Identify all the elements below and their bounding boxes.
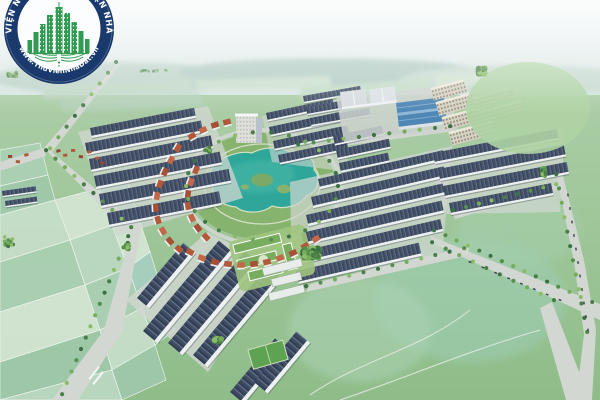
- villa: [152, 192, 160, 201]
- tree: [571, 258, 575, 262]
- tree: [568, 290, 572, 294]
- tree: [3, 235, 7, 239]
- tree: [334, 197, 338, 201]
- tree: [574, 273, 578, 277]
- tree: [534, 274, 538, 278]
- tree: [568, 244, 572, 248]
- tree: [565, 230, 569, 234]
- tree: [579, 302, 583, 306]
- tree: [443, 233, 447, 237]
- tree: [357, 135, 361, 139]
- village-house: [63, 153, 68, 156]
- tree: [457, 253, 461, 257]
- tree: [120, 217, 124, 221]
- tree: [74, 358, 78, 362]
- tree: [60, 392, 64, 396]
- tree: [112, 268, 116, 272]
- tree: [333, 277, 337, 281]
- tree: [219, 336, 224, 341]
- tree: [522, 269, 526, 273]
- tree: [251, 130, 255, 134]
- tree: [525, 285, 529, 289]
- tree: [590, 300, 594, 304]
- tree: [462, 246, 466, 250]
- tree: [448, 124, 452, 128]
- tree: [121, 245, 125, 249]
- tree: [327, 139, 331, 143]
- tree: [347, 274, 351, 278]
- tree: [88, 324, 92, 328]
- tree: [48, 146, 52, 150]
- tree: [98, 302, 102, 306]
- tree: [579, 295, 583, 299]
- villa-roof: [237, 262, 245, 268]
- villa: [237, 262, 245, 269]
- tree: [419, 257, 423, 261]
- tree: [511, 279, 515, 283]
- tree: [500, 259, 504, 263]
- tree: [193, 159, 197, 163]
- tree: [484, 266, 488, 270]
- villa-roof: [250, 261, 258, 267]
- tree: [63, 165, 67, 169]
- tree: [560, 201, 564, 205]
- village-house: [95, 156, 100, 159]
- tree: [554, 182, 558, 186]
- tree: [129, 225, 133, 229]
- tree: [503, 195, 507, 199]
- village-house: [79, 155, 84, 158]
- tree: [433, 253, 437, 257]
- tree: [304, 284, 308, 288]
- tree: [577, 287, 581, 291]
- tree: [317, 148, 321, 152]
- tree: [319, 281, 323, 285]
- villa-facade: [237, 268, 245, 270]
- scene-svg: THƯ VIỆN NHÀ ĐẤT · THƯ VIỆN NHÀ ĐẤT ✦ ww…: [0, 0, 600, 400]
- tree: [217, 140, 221, 144]
- tree: [82, 182, 86, 186]
- tree: [79, 347, 83, 351]
- tree: [117, 257, 121, 261]
- villa: [224, 261, 232, 269]
- tree: [203, 148, 207, 152]
- tree: [311, 140, 315, 144]
- tree: [44, 148, 48, 152]
- tree: [498, 272, 502, 276]
- village-house: [71, 149, 75, 152]
- tree: [208, 145, 212, 149]
- tree: [6, 244, 10, 248]
- tree: [471, 259, 475, 263]
- tree: [543, 170, 547, 174]
- tree: [511, 264, 515, 268]
- tree: [287, 133, 291, 137]
- tree: [376, 267, 380, 271]
- village-house: [100, 161, 105, 164]
- villa-roof: [153, 204, 159, 212]
- aerial-render: THƯ VIỆN NHÀ ĐẤT · THƯ VIỆN NHÀ ĐẤT ✦ ww…: [0, 0, 600, 400]
- tree: [489, 254, 493, 258]
- tree: [554, 172, 558, 176]
- tree: [269, 238, 273, 242]
- tree: [56, 135, 60, 139]
- tree: [362, 270, 366, 274]
- tree: [342, 137, 346, 141]
- tree: [541, 185, 545, 189]
- tree: [372, 133, 376, 137]
- tree: [53, 157, 57, 161]
- tree: [110, 208, 114, 212]
- tree: [233, 134, 237, 138]
- tree: [327, 159, 331, 163]
- tree: [466, 244, 470, 248]
- tree: [390, 263, 394, 267]
- tree: [433, 126, 437, 130]
- village-house: [16, 160, 21, 163]
- tree: [125, 246, 129, 250]
- tree: [516, 192, 520, 196]
- tree: [70, 370, 74, 374]
- tree: [269, 130, 273, 134]
- tree: [84, 336, 88, 340]
- tree: [563, 215, 567, 219]
- tree: [552, 298, 556, 302]
- tree: [336, 184, 340, 188]
- tree: [311, 253, 316, 258]
- tree: [477, 202, 481, 206]
- tree: [186, 171, 190, 175]
- tree: [251, 238, 255, 242]
- tree: [6, 241, 10, 245]
- tree: [327, 209, 331, 213]
- tree: [444, 247, 448, 251]
- tree: [91, 191, 95, 195]
- tree: [233, 235, 237, 239]
- tree: [316, 247, 321, 252]
- tree: [103, 291, 107, 295]
- village-house: [8, 155, 12, 158]
- tree: [405, 260, 409, 264]
- villa-facade: [151, 204, 153, 212]
- tree: [387, 131, 391, 135]
- tree: [11, 237, 15, 241]
- tree: [303, 140, 307, 144]
- tree: [65, 125, 69, 129]
- villa: [183, 202, 191, 211]
- tree: [193, 209, 197, 213]
- tree: [403, 129, 407, 133]
- tree: [477, 249, 481, 253]
- lake-island: [241, 184, 249, 190]
- tree: [418, 128, 422, 132]
- tree: [93, 313, 97, 317]
- tree: [303, 228, 307, 232]
- tree: [490, 198, 494, 202]
- tree: [539, 292, 543, 296]
- tree: [107, 279, 111, 283]
- tree: [126, 234, 130, 238]
- tree: [557, 186, 561, 190]
- villa: [151, 204, 159, 212]
- villa: [183, 190, 191, 198]
- tree: [334, 171, 338, 175]
- tree: [302, 254, 307, 259]
- tree: [529, 189, 533, 193]
- tree: [432, 228, 436, 232]
- tree: [212, 337, 217, 342]
- tree: [101, 199, 105, 203]
- villa-roof: [224, 261, 232, 267]
- tree: [184, 184, 188, 188]
- tree: [430, 240, 434, 244]
- tree: [203, 220, 207, 224]
- tree: [455, 238, 459, 242]
- tree: [296, 142, 300, 146]
- lake-island: [277, 185, 291, 194]
- lake-island: [251, 174, 273, 187]
- villa: [250, 261, 258, 269]
- tree: [217, 228, 221, 232]
- tree: [186, 197, 190, 201]
- tree: [448, 250, 452, 254]
- tree: [72, 174, 76, 178]
- tree: [287, 235, 291, 239]
- tree: [451, 208, 455, 212]
- tree: [545, 280, 549, 284]
- tree: [317, 220, 321, 224]
- tree: [65, 381, 69, 385]
- tree: [464, 205, 468, 209]
- tree: [556, 285, 560, 289]
